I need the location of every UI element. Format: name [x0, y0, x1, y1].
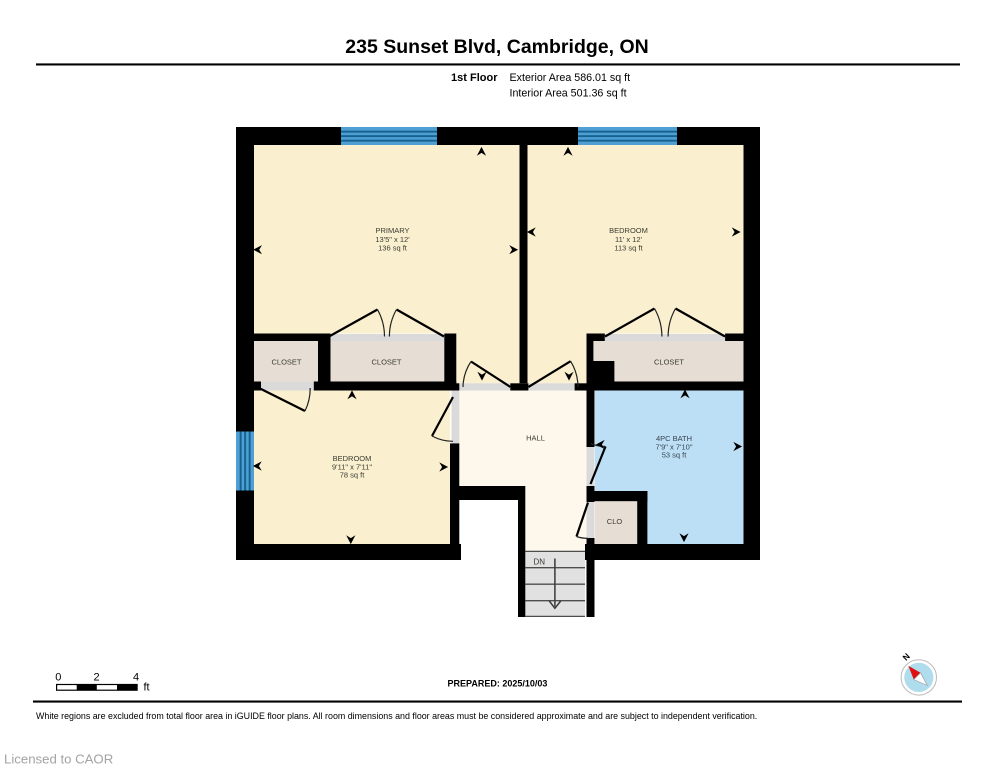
svg-text:BEDROOM: BEDROOM	[609, 226, 648, 235]
svg-text:PRIMARY: PRIMARY	[375, 226, 409, 235]
svg-text:2: 2	[94, 672, 100, 684]
svg-text:ft: ft	[144, 682, 150, 694]
svg-text:4: 4	[133, 672, 139, 684]
svg-text:CLO: CLO	[607, 517, 623, 526]
svg-text:78 sq ft: 78 sq ft	[340, 471, 366, 480]
svg-text:136 sq ft: 136 sq ft	[378, 244, 408, 253]
svg-text:1st Floor: 1st Floor	[451, 72, 498, 84]
svg-text:HALL: HALL	[526, 433, 545, 442]
svg-text:PREPARED: 2025/10/03: PREPARED: 2025/10/03	[448, 679, 548, 689]
svg-text:235 Sunset Blvd, Cambridge, ON: 235 Sunset Blvd, Cambridge, ON	[345, 36, 648, 58]
svg-text:CLOSET: CLOSET	[271, 357, 301, 366]
svg-text:11' x 12': 11' x 12'	[615, 235, 642, 244]
svg-text:Exterior Area 586.01 sq ft: Exterior Area 586.01 sq ft	[510, 72, 631, 84]
svg-text:113 sq ft: 113 sq ft	[614, 244, 643, 253]
svg-text:13'5" x 12': 13'5" x 12'	[375, 235, 410, 244]
svg-text:N: N	[900, 651, 911, 662]
svg-text:White regions are excluded fro: White regions are excluded from total fl…	[36, 711, 757, 721]
svg-text:Licensed to CAOR: Licensed to CAOR	[4, 752, 113, 767]
svg-text:Interior Area 501.36 sq ft: Interior Area 501.36 sq ft	[510, 88, 627, 100]
svg-text:DN: DN	[534, 558, 546, 567]
svg-text:0: 0	[55, 672, 61, 684]
svg-text:CLOSET: CLOSET	[371, 357, 401, 366]
svg-text:53 sq ft: 53 sq ft	[662, 451, 688, 460]
svg-text:CLOSET: CLOSET	[654, 357, 684, 366]
